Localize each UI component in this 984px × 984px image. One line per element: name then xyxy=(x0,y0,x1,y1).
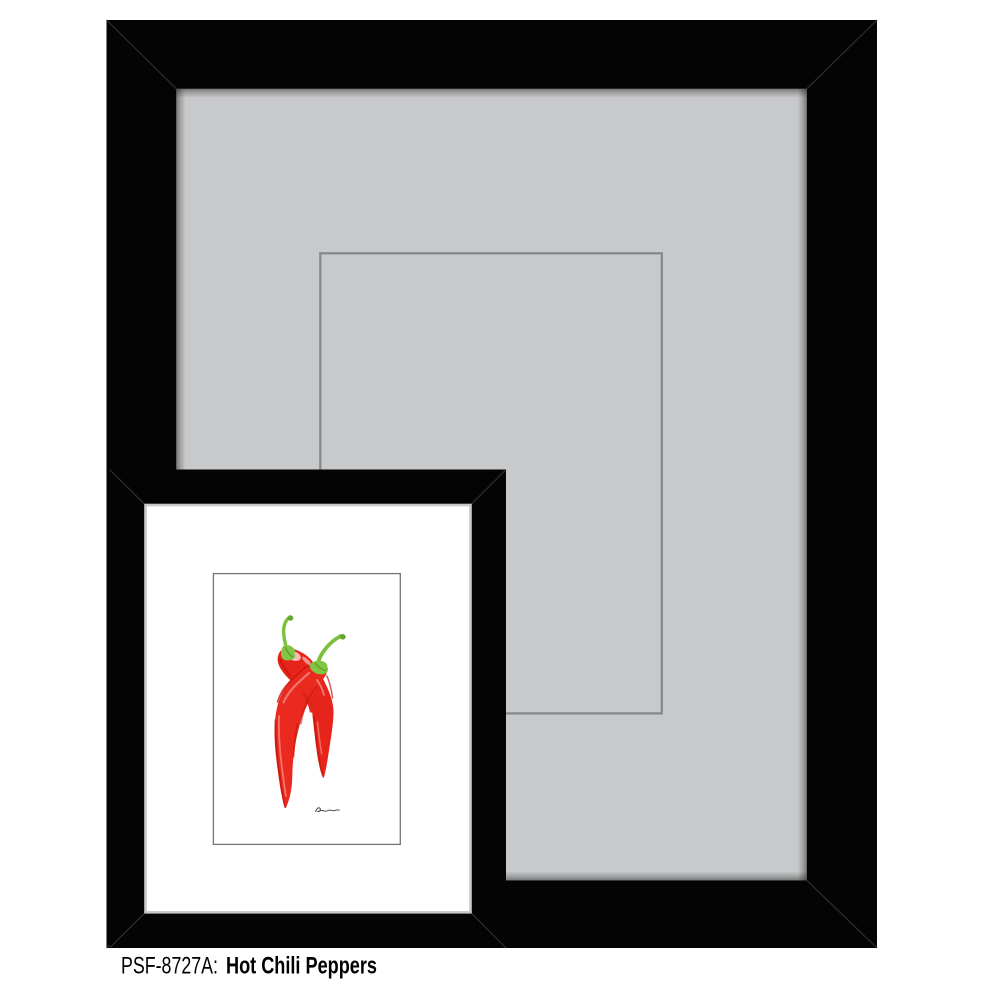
svg-text:PSF-8727A:: PSF-8727A: xyxy=(121,953,218,980)
svg-text:Hot Chili Peppers: Hot Chili Peppers xyxy=(226,953,377,980)
